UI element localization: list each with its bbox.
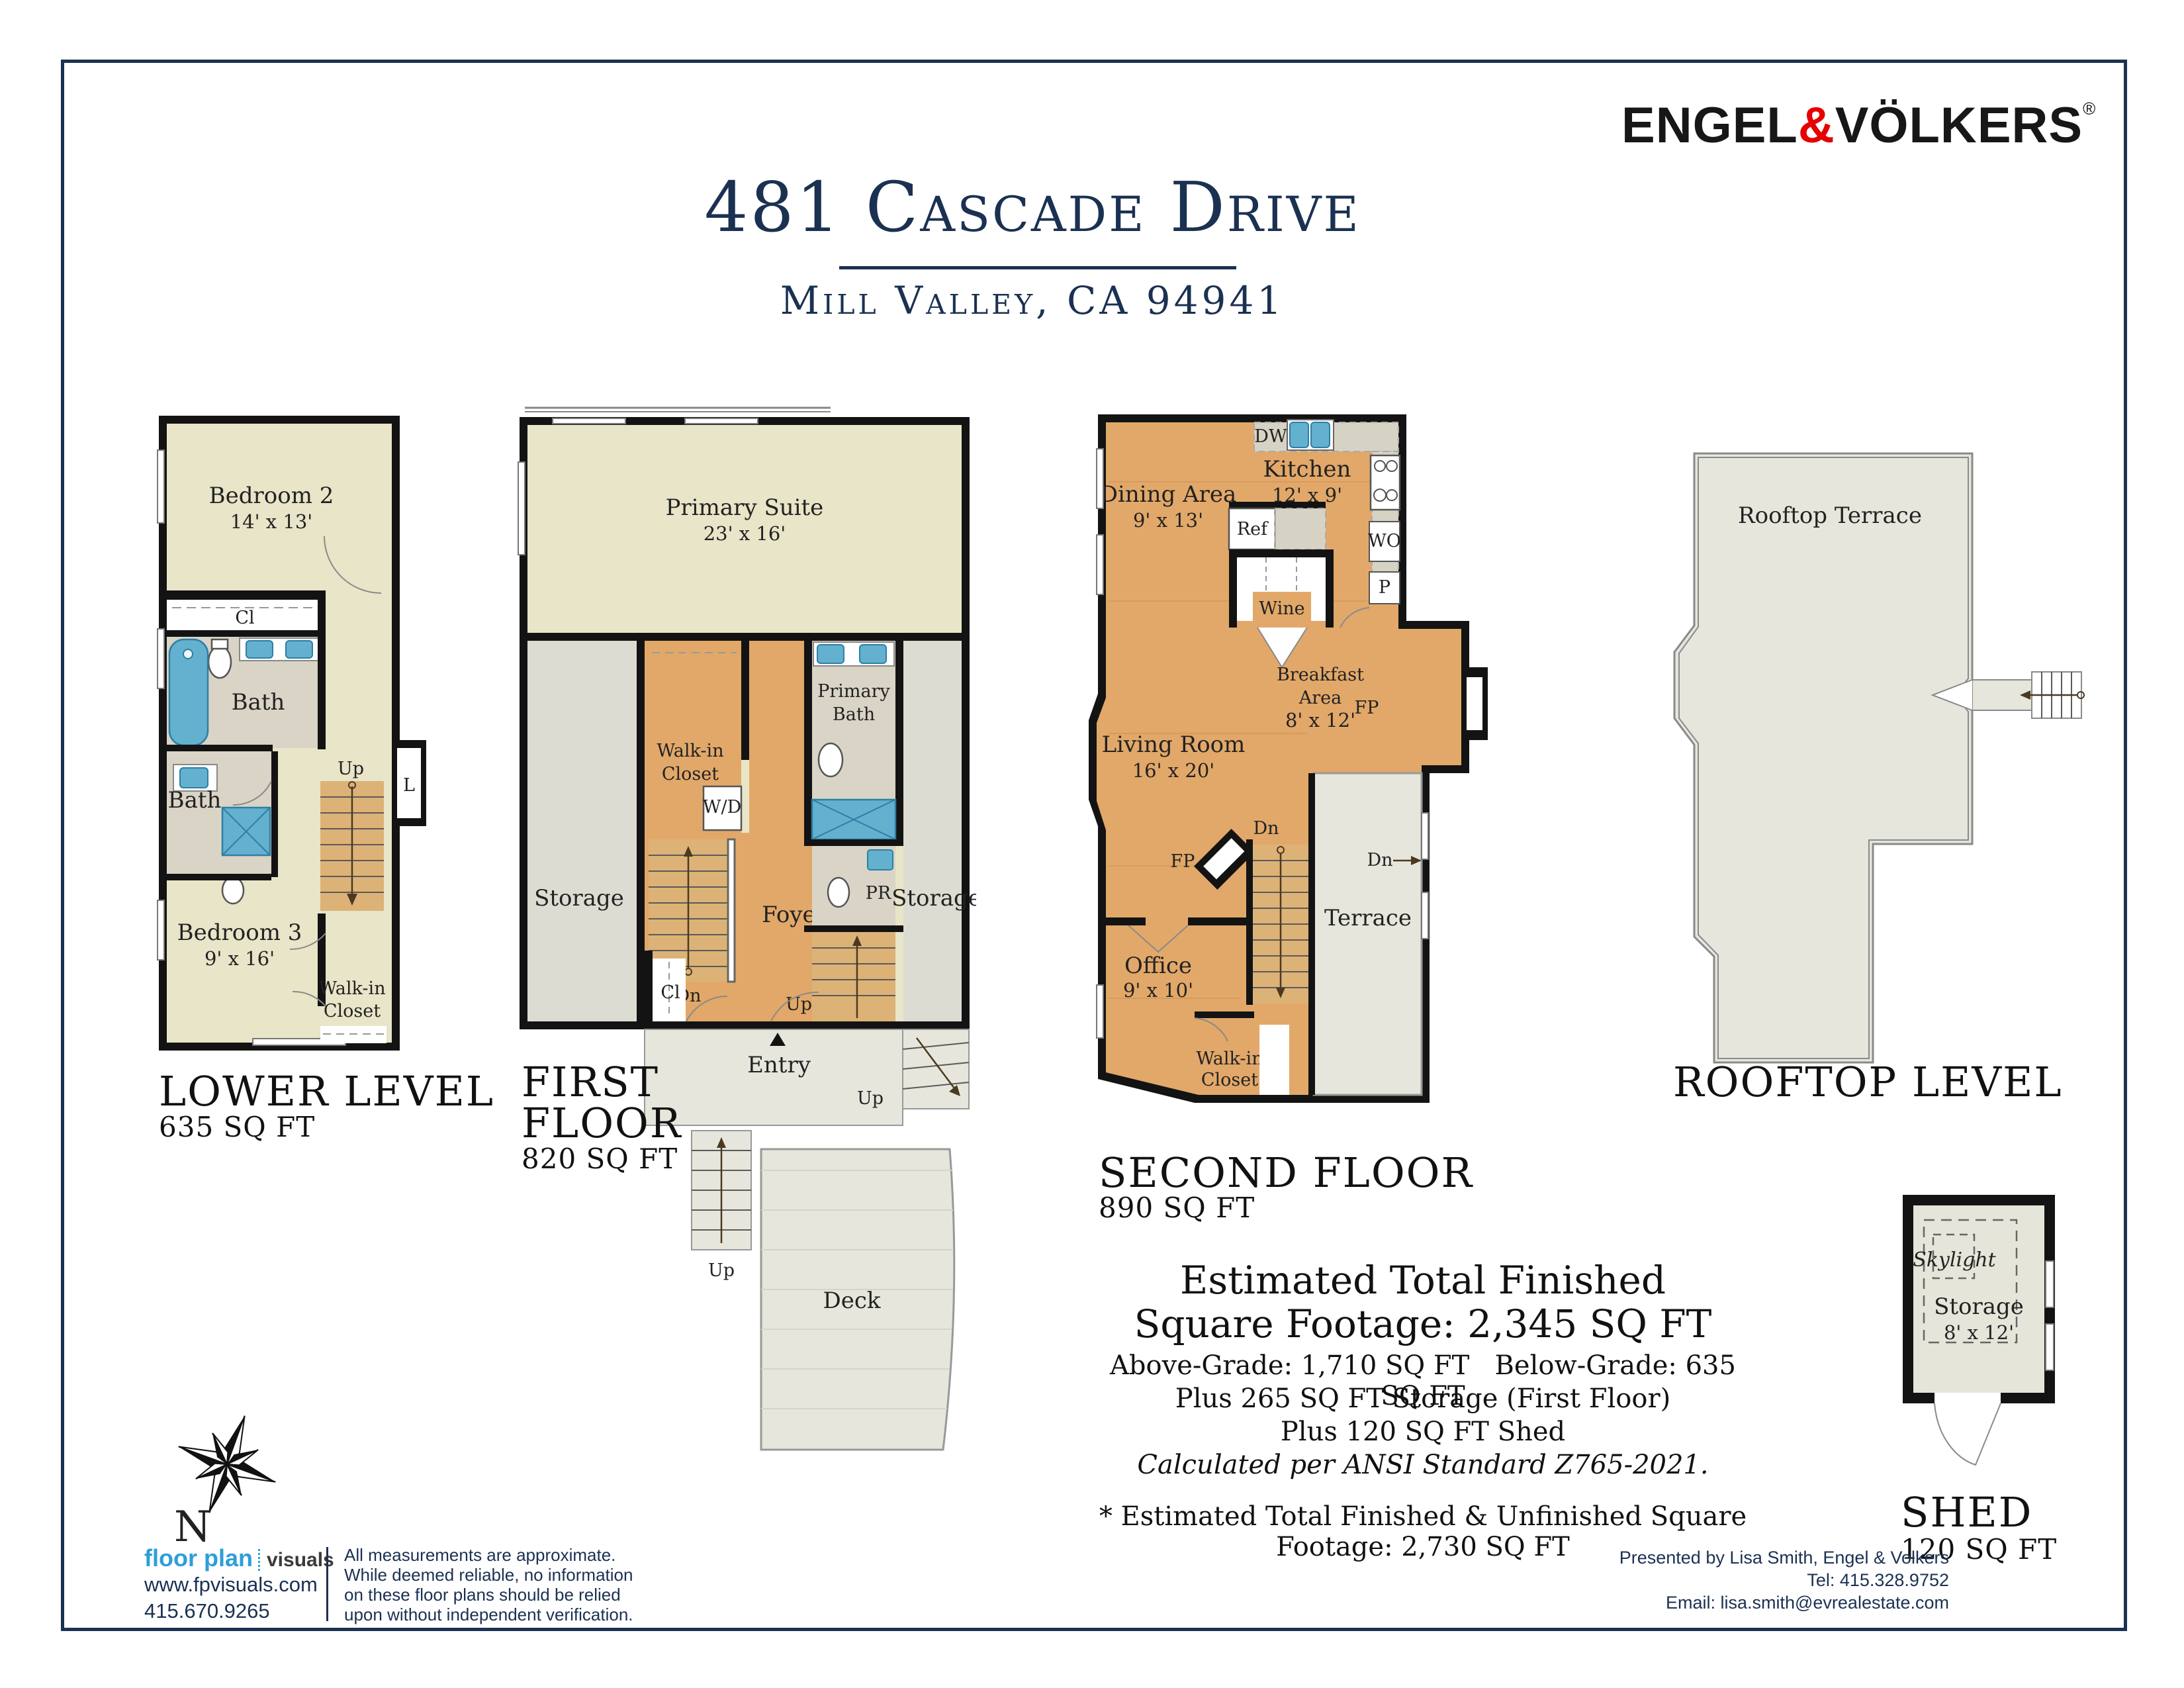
footer-divider	[326, 1547, 328, 1621]
room-label-primary-bath-2: Bath	[833, 704, 875, 725]
page-title: 481 Cascade Drive	[635, 167, 1430, 248]
disclaimer-line-4: upon without independent verification.	[344, 1606, 633, 1623]
terrace-dn-label: Dn	[1367, 850, 1392, 870]
wic-label-2: Closet	[324, 1001, 381, 1021]
sink-icon	[868, 850, 893, 870]
fp-visuals-phone: 415.670.9265	[144, 1599, 270, 1623]
rooftop-level-title: ROOFTOP LEVEL	[1673, 1058, 2063, 1106]
summary-line-2: Square Footage: 2,345 SQ FT	[1092, 1301, 1754, 1346]
room-dim-breakfast: 8' x 12'	[1285, 709, 1355, 731]
wine-label: Wine	[1259, 598, 1304, 619]
disclaimer-line-1: All measurements are approximate.	[344, 1546, 615, 1564]
pr-label: PR	[866, 883, 891, 904]
lower-level-title: LOWER LEVEL	[159, 1067, 494, 1115]
rooftop-plan: Rooftop Terrace	[1655, 434, 2105, 1096]
deck-label: Deck	[823, 1288, 880, 1314]
summary-line-5: Plus 120 SQ FT Shed	[1092, 1417, 1754, 1447]
logo-volkers: VÖLKERS	[1835, 97, 2083, 154]
shed-storage-dim: 8' x 12'	[1944, 1321, 2014, 1344]
stairs-up-inner-label: Up	[786, 994, 812, 1015]
toilet-icon	[828, 878, 849, 907]
room-dim-bedroom3: 9' x 16'	[205, 947, 275, 970]
room-label-primary-suite: Primary Suite	[666, 494, 824, 521]
p-label: P	[1379, 577, 1390, 598]
shed-plan: Skylight Storage 8' x 12'	[1896, 1188, 2068, 1473]
logo-ampersand: &	[1798, 97, 1835, 154]
shed-title: SHED	[1901, 1488, 2033, 1536]
toilet-icon	[208, 646, 231, 678]
room-label-office: Office	[1124, 953, 1192, 979]
room-label-primary-bath-1: Primary	[817, 681, 890, 702]
logo-engel: ENGEL	[1621, 97, 1798, 154]
room-dim-office: 9' x 10'	[1123, 979, 1193, 1002]
room-dim-dining: 9' x 13'	[1133, 509, 1203, 532]
sink-icon	[180, 768, 208, 788]
fp-left-label: FP	[1171, 851, 1195, 872]
room-label-storage-right: Storage	[891, 885, 976, 912]
second-floor-plan: DW Kitchen 12' x 9' Dining Area 9' x 13'…	[1089, 402, 1499, 1131]
room-label-bedroom2: Bedroom 2	[209, 483, 334, 509]
fp-logo-bold: floor plan	[144, 1544, 253, 1571]
compass-north-label: N	[174, 1503, 211, 1549]
kitchen-sink-icon	[1311, 422, 1330, 447]
dw-label: DW	[1254, 426, 1287, 447]
kitchen-sink-icon	[1290, 422, 1308, 447]
lower-level-plan: Bedroom 2 14' x 13' Cl Bath Bath L Up Be…	[154, 410, 432, 1056]
disclaimer-line-3: on these floor plans should be relied	[344, 1586, 621, 1603]
agent-email: Email: lisa.smith@evrealestate.com	[1486, 1593, 1949, 1613]
room-label-dining: Dining Area	[1100, 481, 1237, 508]
laundry-label: L	[403, 775, 415, 796]
room-label-bath1: Bath	[232, 689, 285, 716]
disclaimer-line-2: While deemed reliable, no information	[344, 1566, 633, 1583]
terrace-label: Terrace	[1324, 905, 1412, 931]
wd-label: W/D	[703, 797, 742, 818]
wic-label-2: Closet	[662, 764, 719, 784]
wic-label-1: Walk-in	[1196, 1049, 1263, 1069]
wic-label-2: Closet	[1201, 1070, 1258, 1090]
lower-level-sqft: 635 SQ FT	[159, 1111, 315, 1143]
page-subtitle: Mill Valley, CA 94941	[635, 278, 1430, 323]
room-label-breakfast-2: Area	[1298, 688, 1342, 708]
terrace-area	[1314, 773, 1422, 1095]
registered-mark: ®	[2083, 99, 2096, 118]
floor-plan-document: ENGEL&VÖLKERS® 481 Cascade Drive Mill Va…	[0, 0, 2184, 1688]
fp-right-label: FP	[1355, 698, 1379, 718]
summary-above-grade: Above-Grade: 1,710 SQ FT	[1110, 1350, 1469, 1381]
stairs-dn-label: Dn	[1253, 818, 1279, 839]
deck-up-label: Up	[708, 1260, 735, 1281]
sink-icon	[246, 641, 273, 658]
fp-visuals-url: www.fpvisuals.com	[144, 1573, 318, 1597]
rooftop-terrace-area	[1674, 453, 1972, 1062]
wo-label: WO	[1368, 531, 1401, 551]
first-floor-plan: Primary Suite 23' x 16' Storage Walk-in …	[513, 402, 976, 1475]
room-dim-bedroom2: 14' x 13'	[230, 510, 313, 533]
engel-volkers-logo: ENGEL&VÖLKERS®	[1621, 97, 2045, 154]
wic-label-1: Walk-in	[657, 741, 723, 761]
room-label-bedroom3: Bedroom 3	[177, 919, 302, 946]
toilet-icon	[222, 877, 244, 904]
entry-label: Entry	[747, 1052, 811, 1078]
second-floor-sqft: 890 SQ FT	[1099, 1192, 1255, 1224]
room-dim-primary-suite: 23' x 16'	[704, 522, 786, 545]
fp-logo-light: visuals	[258, 1549, 334, 1571]
cl-label: Cl	[660, 982, 680, 1003]
first-floor-sqft: 820 SQ FT	[522, 1143, 678, 1175]
agent-tel: Tel: 415.328.9752	[1486, 1570, 1949, 1591]
toilet-icon	[819, 743, 842, 776]
closet-label: Cl	[235, 608, 254, 628]
skylight-label: Skylight	[1913, 1248, 1996, 1272]
second-floor-title: SECOND FLOOR	[1099, 1149, 1473, 1197]
stairs-up-label: Up	[338, 759, 364, 779]
room-label-storage-left: Storage	[534, 885, 624, 912]
rooftop-terrace-label: Rooftop Terrace	[1738, 502, 1922, 529]
sink-icon	[860, 645, 886, 663]
ref-label: Ref	[1237, 519, 1269, 539]
summary-line-4: Plus 265 SQ FT Storage (First Floor)	[1092, 1383, 1754, 1414]
room-dim-living: 16' x 20'	[1132, 759, 1215, 782]
summary-line-6: Calculated per ANSI Standard Z765-2021.	[1092, 1450, 1754, 1480]
summary-line-1: Estimated Total Finished	[1092, 1258, 1754, 1303]
wic-label-1: Walk-in	[318, 978, 385, 999]
room-label-bath2: Bath	[168, 787, 222, 814]
presented-by: Presented by Lisa Smith, Engel & Volkers	[1486, 1548, 1949, 1568]
floor-plan-visuals-logo: floor planvisuals	[144, 1544, 334, 1572]
title-underline	[839, 266, 1236, 269]
room-label-living: Living Room	[1102, 731, 1246, 758]
door-swing	[1934, 1403, 2001, 1465]
sink-icon	[286, 641, 312, 658]
room-label-kitchen: Kitchen	[1263, 456, 1351, 483]
room-label-breakfast-1: Breakfast	[1277, 665, 1364, 685]
first-floor-title-2: FLOOR	[522, 1099, 682, 1147]
shed-storage-label: Storage	[1934, 1293, 2024, 1320]
porch-up-label: Up	[857, 1088, 884, 1109]
sink-icon	[817, 645, 844, 663]
compass-rose-icon: N	[149, 1403, 295, 1549]
